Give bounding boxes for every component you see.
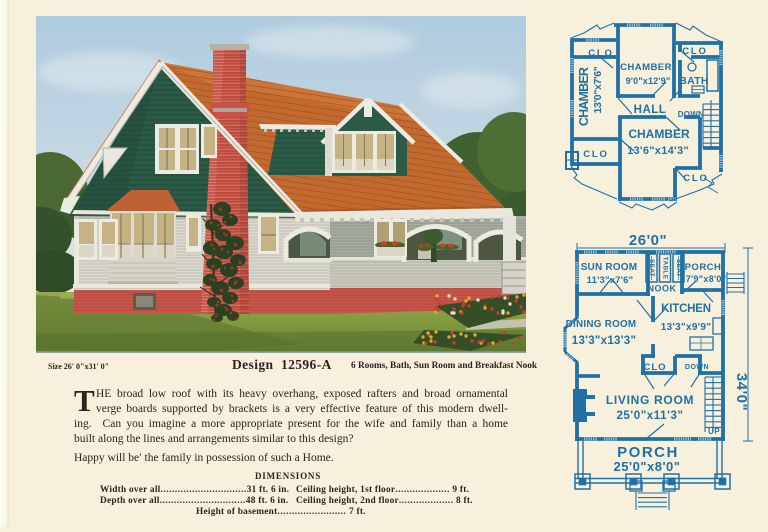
svg-text:CLO: CLO xyxy=(588,48,613,59)
svg-text:CHAMBER: CHAMBER xyxy=(577,67,591,126)
svg-text:25'0"x11'3": 25'0"x11'3" xyxy=(616,410,683,422)
svg-text:CHAMBER: CHAMBER xyxy=(620,62,672,73)
svg-text:HALL: HALL xyxy=(634,104,667,116)
svg-text:DINING ROOM: DINING ROOM xyxy=(566,319,637,330)
svg-text:CLO: CLO xyxy=(683,173,708,184)
svg-text:34'0": 34'0" xyxy=(733,373,750,411)
svg-text:KITCHEN: KITCHEN xyxy=(661,303,711,315)
svg-text:13'6"x14'3": 13'6"x14'3" xyxy=(627,145,689,157)
svg-text:LIVING ROOM: LIVING ROOM xyxy=(606,393,694,407)
svg-text:13'0"x7'6": 13'0"x7'6" xyxy=(592,66,604,113)
svg-text:SUN ROOM: SUN ROOM xyxy=(581,262,638,273)
svg-text:SEAT: SEAT xyxy=(648,259,655,277)
svg-text:UP: UP xyxy=(708,427,720,436)
svg-text:CLO: CLO xyxy=(643,362,666,373)
svg-text:25'0"x8'0": 25'0"x8'0" xyxy=(614,459,681,474)
svg-text:PORCH: PORCH xyxy=(685,262,722,273)
svg-text:DOWN: DOWN xyxy=(685,364,709,371)
svg-text:13'3"x13'3": 13'3"x13'3" xyxy=(572,335,636,347)
svg-text:11'3"x7'6": 11'3"x7'6" xyxy=(587,275,634,286)
svg-text:13'3"x9'9": 13'3"x9'9" xyxy=(661,322,712,333)
svg-text:NOOK: NOOK xyxy=(648,284,677,294)
svg-text:CHAMBER: CHAMBER xyxy=(628,127,690,141)
svg-text:SEAT: SEAT xyxy=(675,259,682,277)
svg-text:CLO: CLO xyxy=(583,149,608,160)
svg-text:26'0": 26'0" xyxy=(629,232,667,249)
svg-text:DOWN: DOWN xyxy=(678,110,705,119)
svg-text:BATH: BATH xyxy=(679,75,709,87)
svg-text:CLO: CLO xyxy=(682,46,707,57)
svg-text:7'9"x8'0": 7'9"x8'0" xyxy=(686,274,727,284)
svg-text:9'0"x12'9": 9'0"x12'9" xyxy=(626,76,671,86)
svg-text:TABLE: TABLE xyxy=(662,257,669,280)
